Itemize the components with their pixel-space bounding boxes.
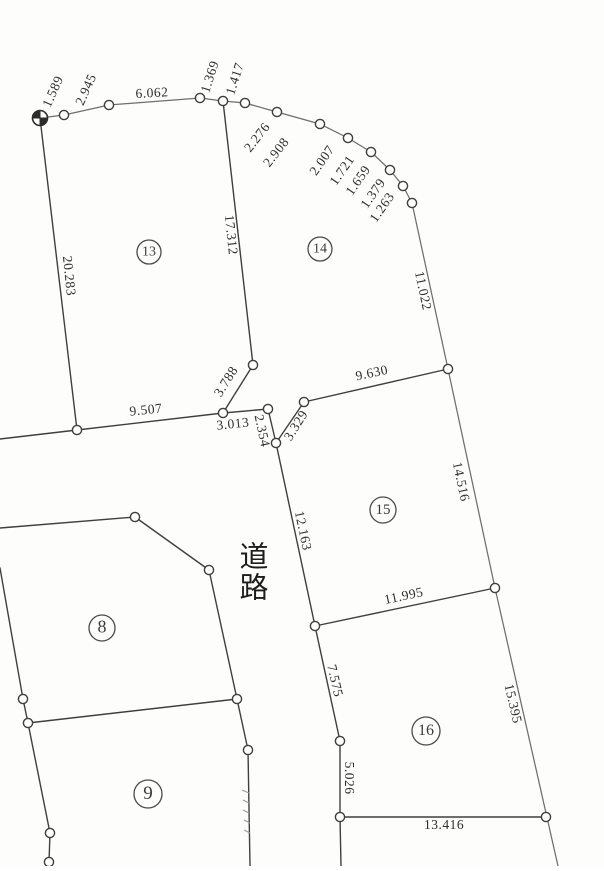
boundary-point-marker: [218, 96, 227, 105]
parcel-number-9: 9: [143, 783, 153, 804]
boundary-point-marker: [243, 745, 252, 754]
boundary-point-marker: [45, 828, 54, 837]
measurement-label-1.589: 1.589: [39, 73, 66, 109]
boundary-point-marker: [541, 812, 550, 821]
boundary-point-marker: [398, 181, 407, 190]
boundary-line: [135, 517, 209, 570]
boundary-point-marker: [272, 107, 281, 116]
measurement-label-2.908: 2.908: [260, 135, 292, 170]
boundary-point-marker: [263, 404, 272, 413]
boundary-point-marker: [44, 857, 53, 866]
boundary-point-marker: [335, 736, 344, 745]
boundary-line: [0, 568, 23, 699]
measurement-label-11.022: 11.022: [412, 270, 435, 312]
cadastral-map-canvas: 1.5892.9456.0621.3691.4172.2762.9082.007…: [0, 0, 604, 866]
measurement-label-5.026: 5.026: [342, 762, 357, 795]
boundary-point-marker: [335, 812, 344, 821]
boundary-line: [223, 409, 268, 413]
slope-tick: [243, 810, 249, 813]
boundary-point-marker: [232, 694, 241, 703]
boundary-line: [0, 517, 135, 528]
measurement-label-1.417: 1.417: [222, 61, 246, 97]
boundary-line: [495, 588, 558, 866]
measurement-label-2.945: 2.945: [72, 71, 99, 107]
boundary-point-marker: [240, 98, 249, 107]
boundary-point-marker: [23, 718, 32, 727]
measurement-label-3.013: 3.013: [216, 414, 250, 432]
parcel-number-15: 15: [376, 502, 391, 518]
measurement-label-1.369: 1.369: [197, 59, 221, 95]
parcel-number-8: 8: [98, 617, 107, 637]
measurement-label-7.575: 7.575: [324, 663, 346, 698]
boundary-point-marker: [130, 512, 139, 521]
boundary-line: [28, 699, 237, 723]
boundary-point-marker: [195, 93, 204, 102]
measurement-label-9.507: 9.507: [129, 400, 163, 418]
parcel-number-14: 14: [313, 242, 327, 257]
parcel-number-16: 16: [418, 722, 434, 739]
parcel-number-13: 13: [142, 245, 156, 260]
measurement-label-6.062: 6.062: [135, 84, 169, 101]
boundary-point-marker: [407, 198, 416, 207]
slope-tick: [242, 790, 249, 793]
measurement-label-13.416: 13.416: [424, 817, 464, 832]
boundary-line: [277, 112, 320, 124]
boundary-point-marker: [72, 425, 81, 434]
cadastral-map-svg: 1.5892.9456.0621.3691.4172.2762.9082.007…: [0, 0, 604, 866]
boundary-point-marker: [343, 133, 352, 142]
boundary-point-marker: [385, 165, 394, 174]
measurement-label-17.312: 17.312: [222, 214, 241, 255]
measurement-label-9.630: 9.630: [354, 362, 389, 384]
slope-tick: [243, 800, 249, 803]
boundary-line: [248, 750, 250, 866]
boundary-line: [237, 699, 248, 750]
boundary-point-marker: [443, 364, 452, 373]
boundary-point-marker: [490, 583, 499, 592]
boundary-point-marker: [18, 694, 27, 703]
road-label-char-1: 道: [239, 541, 268, 574]
boundary-point-marker: [310, 621, 319, 630]
boundary-line: [28, 723, 50, 833]
boundary-point-marker: [315, 119, 324, 128]
benchmark-quadrant: [40, 118, 48, 126]
boundary-line: [0, 430, 77, 439]
measurement-label-15.395: 15.395: [502, 682, 526, 724]
boundary-point-marker: [59, 110, 68, 119]
measurement-label-3.329: 3.329: [281, 407, 311, 443]
boundary-line: [64, 105, 109, 115]
boundary-line: [209, 570, 237, 699]
boundary-point-marker: [299, 397, 308, 406]
boundary-line: [340, 817, 341, 866]
boundary-point-marker: [248, 360, 257, 369]
measurement-label-20.283: 20.283: [60, 255, 79, 296]
measurement-label-3.788: 3.788: [211, 363, 241, 399]
boundary-point-marker: [204, 565, 213, 574]
boundary-point-marker: [366, 147, 375, 156]
benchmark-quadrant: [33, 111, 41, 119]
road-label-char-2: 路: [239, 572, 268, 605]
boundary-point-marker: [104, 100, 113, 109]
